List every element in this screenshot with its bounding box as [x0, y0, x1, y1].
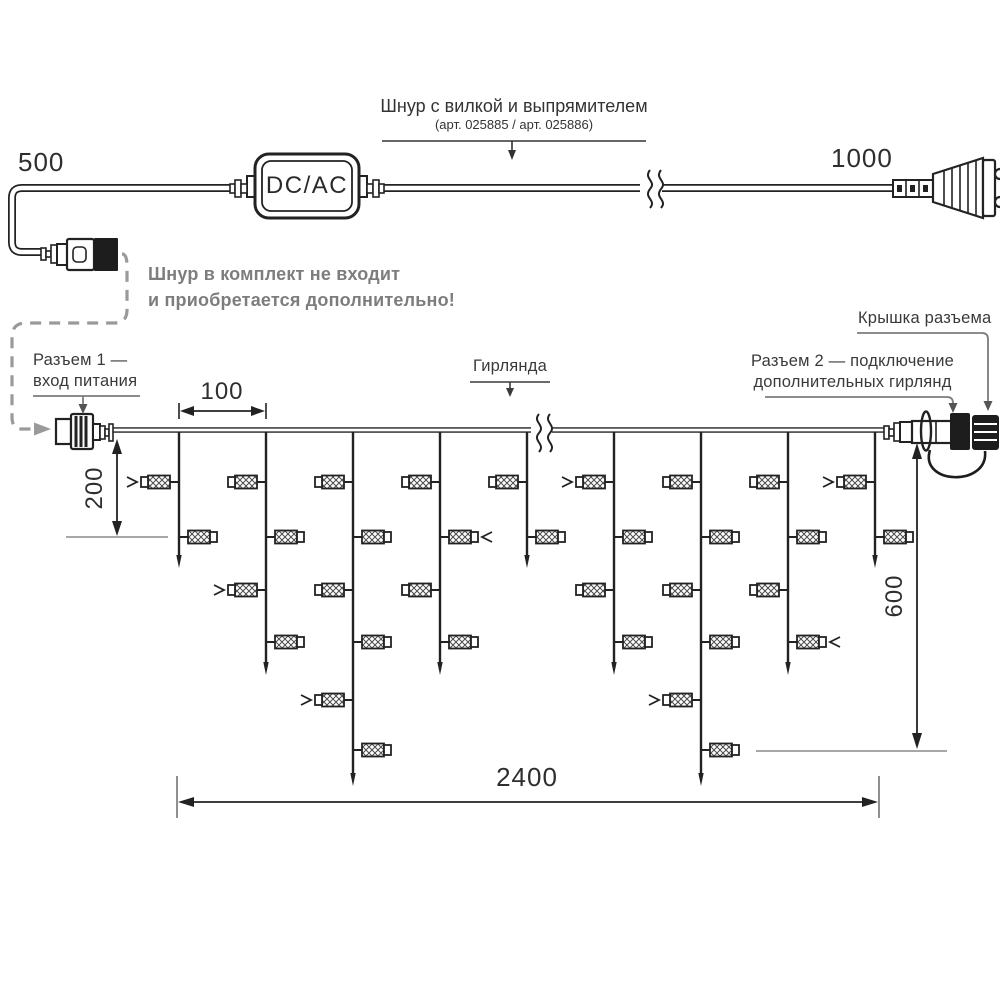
bulb-body	[583, 584, 605, 597]
dim-100-label: 100	[187, 378, 257, 406]
bulb-cap	[384, 745, 391, 755]
mains-plug-icon	[893, 158, 1000, 218]
connector2-icon	[884, 412, 985, 478]
bulb-cap	[228, 477, 235, 487]
connector1-label-line2: вход питания	[33, 372, 137, 391]
bulb-cap	[297, 532, 304, 542]
bulb-cap	[558, 532, 565, 542]
bulb-cap	[384, 532, 391, 542]
cap-label: Крышка разъема	[858, 309, 991, 328]
diagram-canvas: 500 1000 DC/AC Шнур с вилкой и выпрямите…	[0, 0, 1000, 1000]
bulb-body	[362, 636, 384, 649]
bulb-cap	[576, 477, 583, 487]
bulb-cap	[228, 585, 235, 595]
bulb-cap	[402, 477, 409, 487]
bulb-body	[710, 531, 732, 544]
bulb-body	[583, 476, 605, 489]
drop-tip	[524, 555, 529, 568]
drop-tip	[176, 555, 181, 568]
bulb-cap	[732, 532, 739, 542]
flash-bulb-marker-icon	[214, 585, 224, 595]
bulb-cap	[819, 637, 826, 647]
bulb-body	[362, 531, 384, 544]
flash-bulb-marker-icon	[301, 695, 311, 705]
bulb-body	[670, 694, 692, 707]
dim-1000-label: 1000	[831, 143, 893, 174]
bulb-cap	[384, 637, 391, 647]
bulb-body	[757, 476, 779, 489]
flash-bulb-marker-icon	[562, 477, 572, 487]
flash-bulb-marker-icon	[482, 532, 492, 542]
drop-tip	[611, 662, 616, 675]
bulb-cap	[576, 585, 583, 595]
drop-tip	[785, 662, 790, 675]
wire-break-icon	[531, 414, 552, 452]
bulb-cap	[471, 637, 478, 647]
drop-tip	[437, 662, 442, 675]
dim-2400-label: 2400	[467, 762, 587, 793]
drop-tip	[872, 555, 877, 568]
bulb-cap	[297, 637, 304, 647]
bulb-cap	[645, 532, 652, 542]
bulb-cap	[141, 477, 148, 487]
drop-tip	[350, 773, 355, 786]
bulb-cap	[489, 477, 496, 487]
bulb-cap	[906, 532, 913, 542]
garland-drops	[127, 430, 913, 786]
bulb-cap	[732, 745, 739, 755]
bulb-body	[757, 584, 779, 597]
bulb-cap	[315, 477, 322, 487]
bulb-body	[409, 476, 431, 489]
bulb-cap	[663, 585, 670, 595]
bulb-cap	[315, 585, 322, 595]
connector1-label-line1: Разъем 1 —	[33, 351, 127, 370]
bulb-cap	[210, 532, 217, 542]
cord-callout-leader	[382, 141, 646, 160]
bulb-body	[188, 531, 210, 544]
bulb-cap	[645, 637, 652, 647]
bulb-body	[710, 636, 732, 649]
bulb-body	[623, 531, 645, 544]
bulb-body	[148, 476, 170, 489]
bulb-body	[797, 531, 819, 544]
bulb-cap	[732, 637, 739, 647]
dim-600-label: 600	[881, 551, 909, 641]
dashed-route	[12, 254, 127, 436]
dashed-arrowhead	[34, 423, 51, 436]
bulb-cap	[663, 477, 670, 487]
cord-break-icon	[640, 170, 663, 208]
flash-bulb-marker-icon	[823, 477, 833, 487]
warning-text-line1: Шнур в комплект не входит	[148, 264, 400, 285]
dim-500-label: 500	[18, 147, 64, 178]
bulb-body	[623, 636, 645, 649]
bulb-body	[322, 584, 344, 597]
garland-wire	[110, 414, 890, 452]
bulb-body	[362, 744, 384, 757]
bulb-cap	[402, 585, 409, 595]
cord-callout-subtitle: (арт. 025885 / арт. 025886)	[364, 117, 664, 132]
warning-text-line2: и приобретается дополнительно!	[148, 290, 455, 311]
drop-tip	[263, 662, 268, 675]
dcac-box-label: DC/AC	[255, 154, 359, 218]
bulb-cap	[750, 585, 757, 595]
dim-200-label: 200	[81, 443, 109, 533]
bulb-body	[275, 636, 297, 649]
bulb-body	[449, 531, 471, 544]
connector2-label-line2: дополнительных гирлянд	[745, 373, 960, 392]
drop-tip	[698, 773, 703, 786]
flash-bulb-marker-icon	[830, 637, 840, 647]
garland-callout-leader	[470, 382, 550, 397]
connector2-label-line1: Разъем 2 — подключение	[745, 352, 960, 371]
bulb-body	[275, 531, 297, 544]
bulb-body	[235, 476, 257, 489]
bulb-body	[409, 584, 431, 597]
bulb-body	[844, 476, 866, 489]
flash-bulb-marker-icon	[649, 695, 659, 705]
connector2-callout-leader	[765, 397, 958, 413]
bulb-cap	[471, 532, 478, 542]
cap-callout-leader	[857, 333, 993, 411]
bulb-body	[322, 476, 344, 489]
connector1-callout-leader	[33, 396, 140, 414]
flash-bulb-marker-icon	[127, 477, 137, 487]
bulb-body	[496, 476, 518, 489]
bulb-body	[536, 531, 558, 544]
bulb-body	[797, 636, 819, 649]
garland-label: Гирлянда	[430, 357, 590, 376]
bulb-cap	[819, 532, 826, 542]
bulb-body	[322, 694, 344, 707]
dc-connector-icon	[41, 238, 118, 271]
bulb-body	[235, 584, 257, 597]
bulb-cap	[750, 477, 757, 487]
bulb-body	[670, 584, 692, 597]
bulb-body	[449, 636, 471, 649]
bulb-body	[670, 476, 692, 489]
connector-cap-icon	[972, 415, 999, 450]
bulb-cap	[315, 695, 322, 705]
cord-callout-title: Шнур с вилкой и выпрямителем	[364, 96, 664, 117]
bulb-body	[884, 531, 906, 544]
bulb-cap	[663, 695, 670, 705]
bulb-body	[710, 744, 732, 757]
bulb-cap	[837, 477, 844, 487]
